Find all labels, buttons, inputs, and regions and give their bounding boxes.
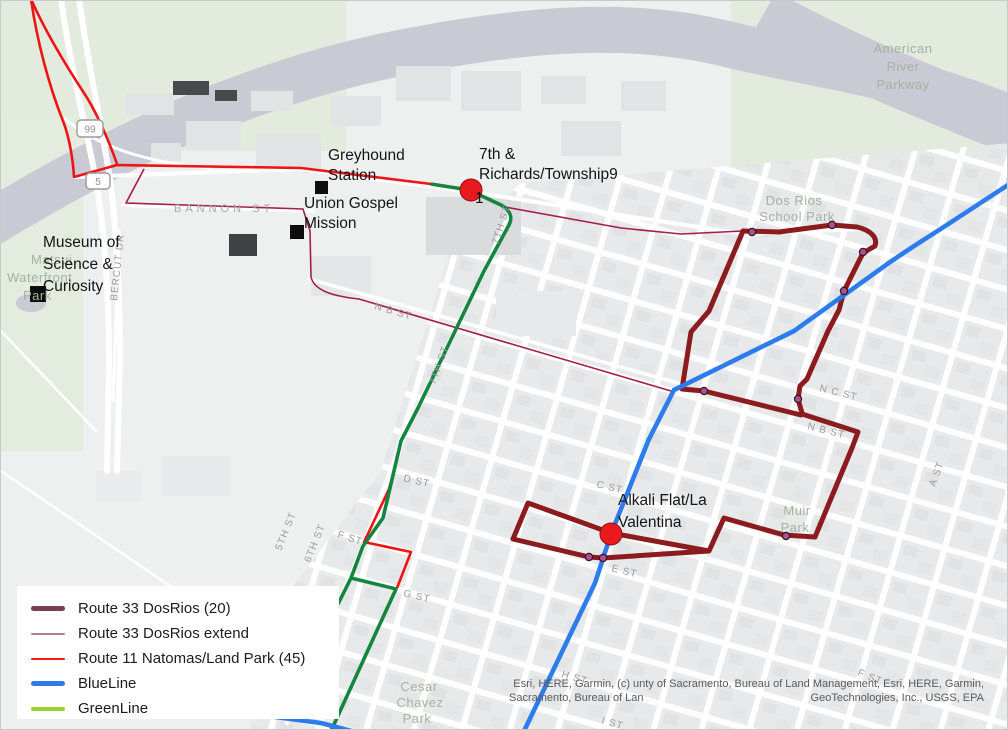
legend-item-route-33-extend: Route 33 DosRios extend bbox=[31, 621, 339, 646]
stop-number-label: 1 bbox=[475, 190, 484, 207]
stop-dot bbox=[859, 248, 866, 255]
stop-dot bbox=[700, 387, 707, 394]
svg-text:River: River bbox=[887, 59, 920, 74]
dos-rios-school-park-label: Dos Rios bbox=[766, 193, 823, 208]
legend-item-greenline: GreenLine bbox=[31, 696, 339, 721]
shield-99: 99 bbox=[84, 125, 96, 136]
svg-text:Curiosity: Curiosity bbox=[43, 278, 104, 295]
svg-text:Chavez: Chavez bbox=[396, 695, 443, 710]
legend-item-route-11: Route 11 Natomas/Land Park (45) bbox=[31, 646, 339, 671]
greenline-swatch bbox=[31, 707, 65, 711]
svg-text:Valentina: Valentina bbox=[618, 514, 682, 531]
union-gospel-mission-marker[interactable] bbox=[290, 225, 304, 239]
american-river-parkway-label: American bbox=[874, 41, 933, 56]
svg-text:Richards/Township9: Richards/Township9 bbox=[479, 166, 618, 183]
svg-text:Park: Park bbox=[781, 520, 810, 535]
attribution-line2-left: Sacramento, Bureau of Lan bbox=[509, 692, 644, 704]
svg-text:Mission: Mission bbox=[304, 215, 357, 232]
seventh-richards-label: 7th & bbox=[479, 146, 516, 163]
greyhound-station-label: Greyhound bbox=[328, 147, 405, 164]
svg-text:School Park: School Park bbox=[759, 209, 835, 224]
svg-text:Park: Park bbox=[403, 711, 432, 726]
cesar-chavez-park-label: Cesar bbox=[400, 679, 437, 694]
stop-dot bbox=[599, 554, 606, 561]
svg-text:Station: Station bbox=[328, 167, 376, 184]
attribution-line2-right: GeoTechnologies, Inc., USGS, EPA bbox=[811, 692, 984, 704]
stop-dot bbox=[840, 287, 847, 294]
blueline-swatch bbox=[31, 681, 65, 686]
attribution-line1: Esri, HERE, Garmin, (c) unty of Sacramen… bbox=[513, 678, 984, 690]
bannon-st-label: BANNON ST bbox=[174, 203, 274, 215]
stop-dot bbox=[585, 553, 592, 560]
museum-label: Museum of bbox=[43, 234, 120, 251]
shield-5: 5 bbox=[95, 177, 101, 188]
alkali-flat-label: Alkali Flat/La bbox=[618, 492, 707, 509]
stop-dot bbox=[748, 228, 755, 235]
svg-text:Science &: Science & bbox=[43, 256, 113, 273]
map-legend: Route 33 DosRios (20) Route 33 DosRios e… bbox=[17, 586, 339, 719]
legend-item-blueline: BlueLine bbox=[31, 671, 339, 696]
muir-park-label: Muir bbox=[783, 503, 810, 518]
map-viewport[interactable]: 99 5 American River Parkway Dos Rios Sch… bbox=[0, 0, 1008, 730]
route-33-extend-swatch bbox=[31, 633, 65, 635]
route-33-swatch bbox=[31, 606, 65, 611]
greyhound-station-marker[interactable] bbox=[315, 181, 328, 194]
legend-item-route-33: Route 33 DosRios (20) bbox=[31, 596, 339, 621]
stop-dot bbox=[794, 395, 801, 402]
union-gospel-mission-label: Union Gospel bbox=[304, 195, 398, 212]
route-11-swatch bbox=[31, 658, 65, 660]
svg-text:Parkway: Parkway bbox=[876, 77, 929, 92]
